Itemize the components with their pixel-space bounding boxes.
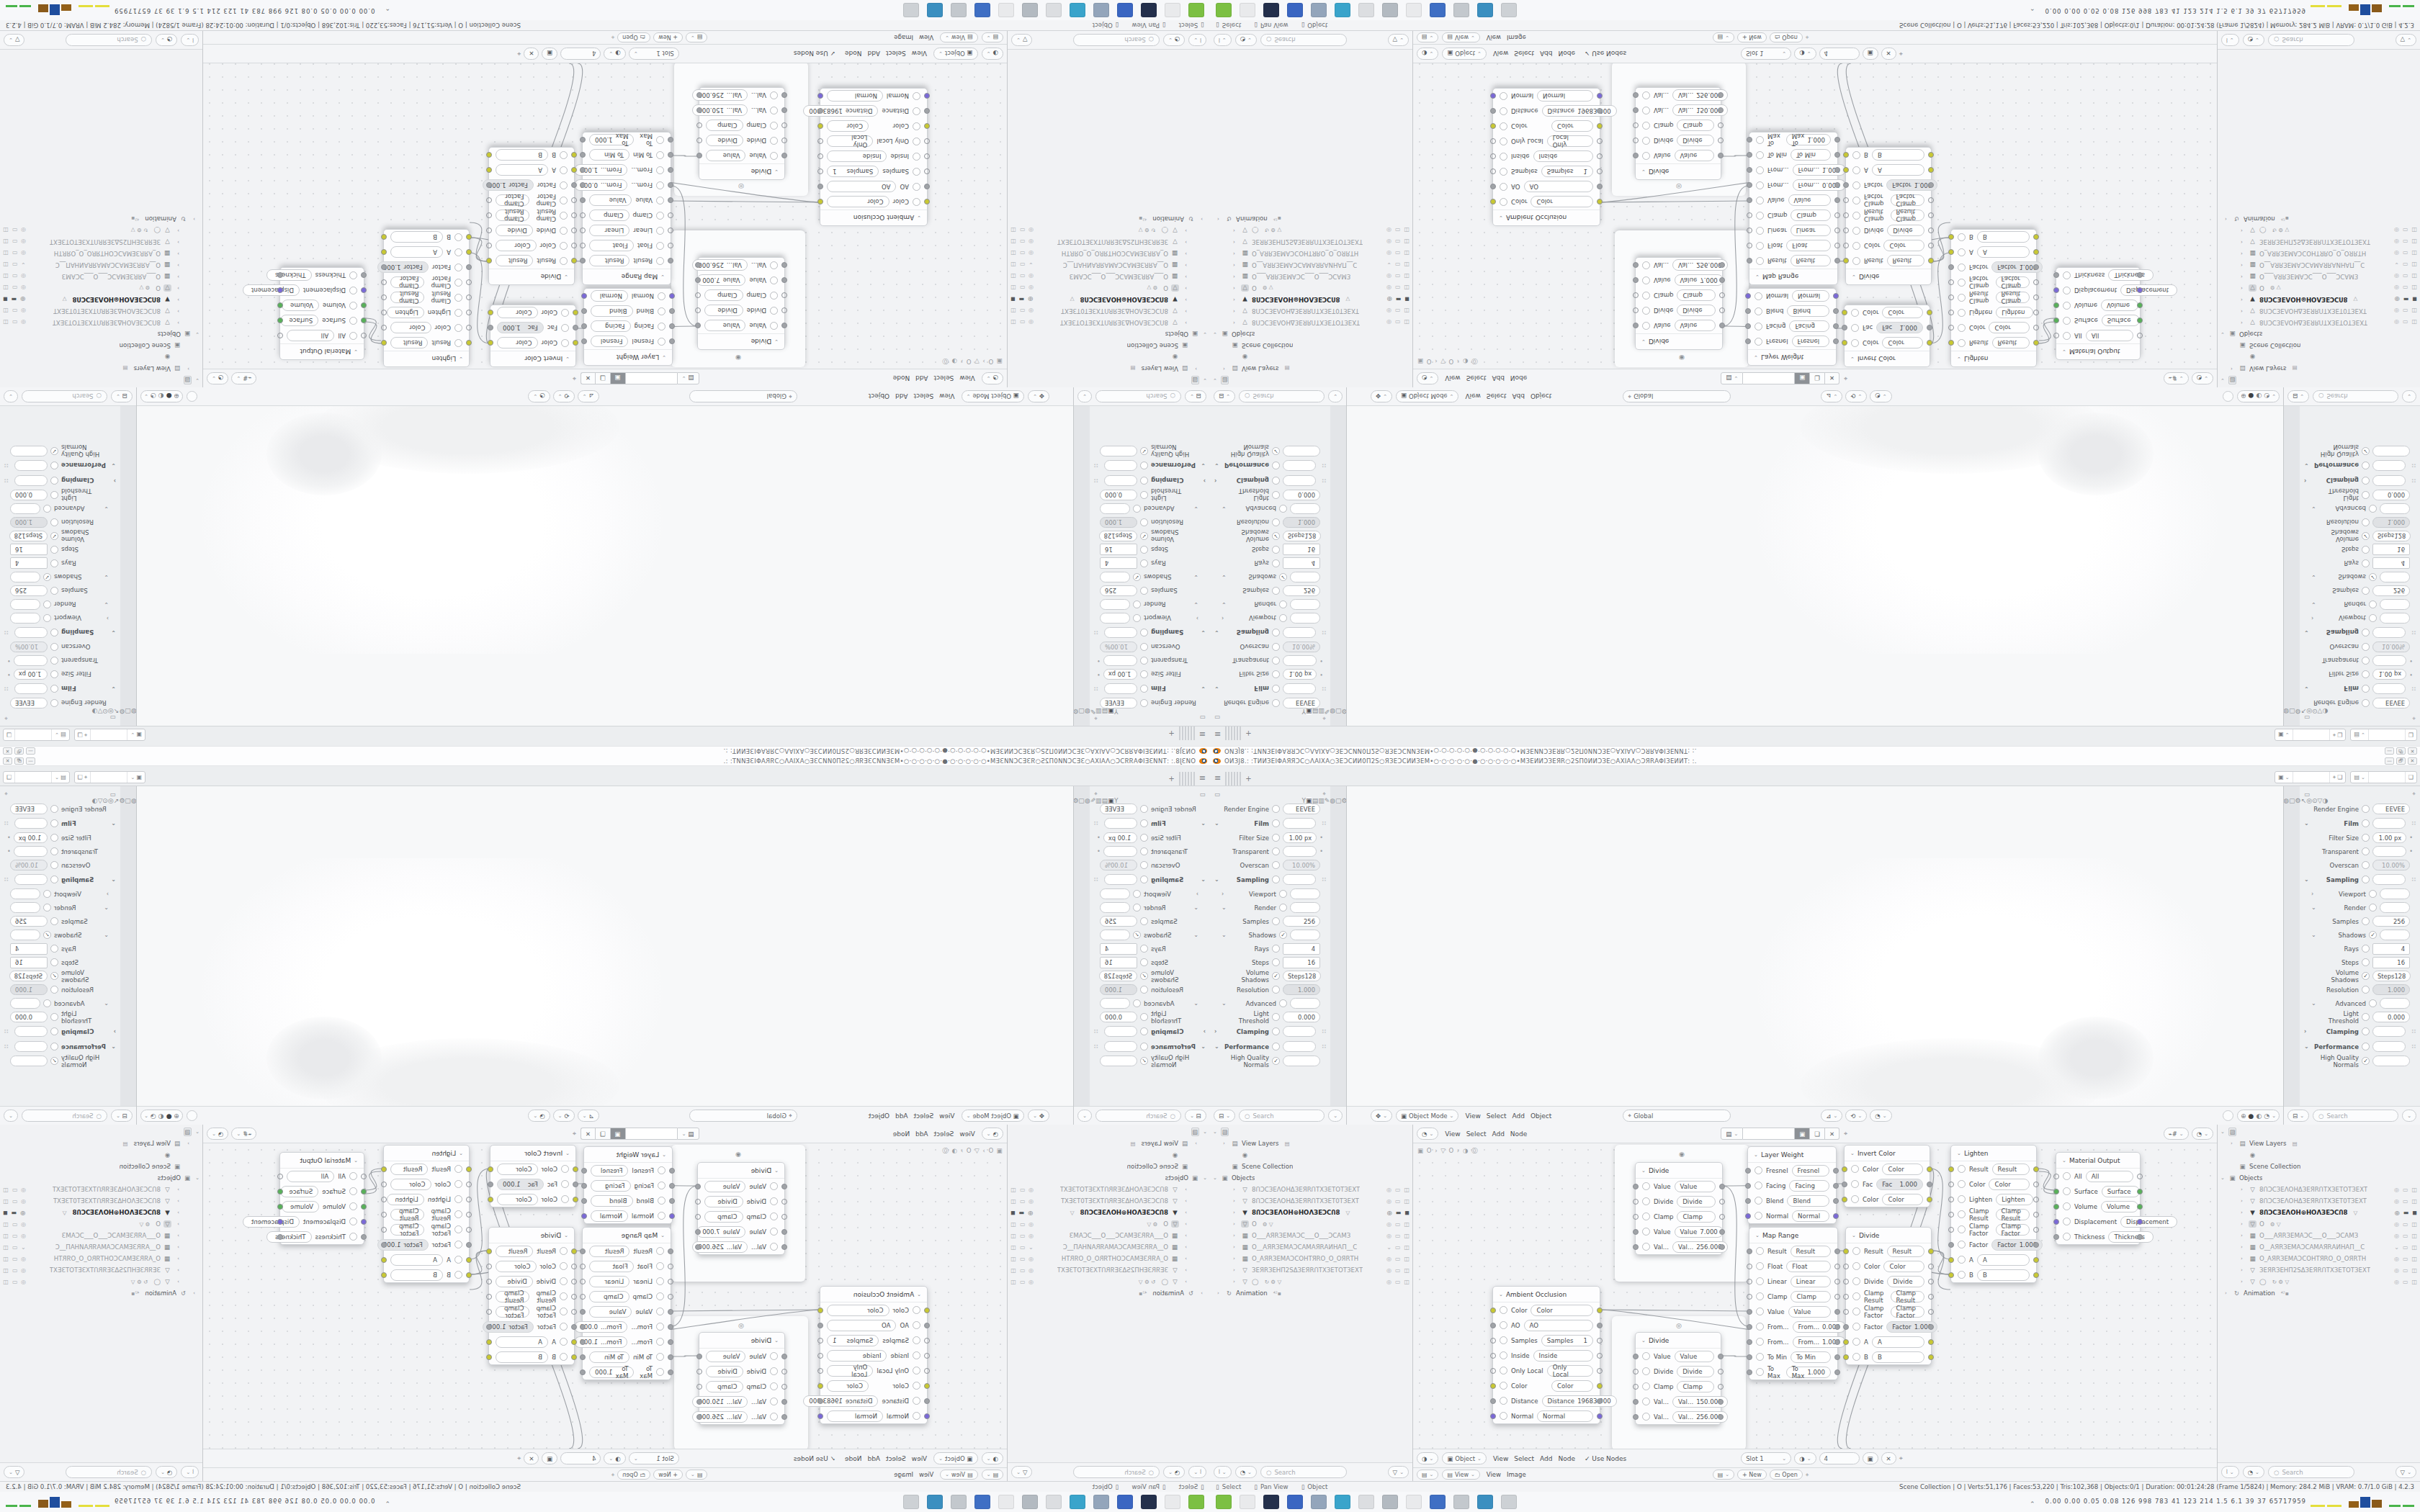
node-checkbox[interactable] <box>770 1182 778 1190</box>
node-row[interactable]: Val... Val...256.000 <box>699 88 784 103</box>
shader-node[interactable]: ⌄Invert Color Color Color <box>1844 1145 1930 1207</box>
node-checkbox[interactable] <box>561 309 569 317</box>
overlays-button[interactable]: ◔⌄ <box>1870 1110 1891 1122</box>
output-socket[interactable] <box>1834 258 1840 264</box>
property-checkbox[interactable] <box>50 917 58 925</box>
node-field[interactable]: Inside <box>1533 151 1593 163</box>
output-socket[interactable] <box>1928 1324 1934 1330</box>
hide-eye-icon[interactable]: ◎ <box>1028 320 1034 326</box>
outliner-row[interactable]: › ▽ ЗЕЯRЗЕНП2SΔЗЕЯRՈТХЗЕТОТЗЕХТ ◎▭◫ <box>2220 1264 2417 1276</box>
expand-chevron[interactable]: › <box>174 308 179 314</box>
outliner-row[interactable]: › ▦ O__АЯRЗЕМАϽϹАМАЯRАИНАП__Ϲ ⌄▭◫ <box>1010 1241 1207 1253</box>
section-chevron[interactable]: › <box>1214 477 1220 484</box>
property-checkbox[interactable] <box>1140 861 1148 869</box>
input-socket[interactable] <box>361 333 367 339</box>
property-value[interactable] <box>1100 503 1130 514</box>
node-checkbox[interactable] <box>454 309 462 317</box>
proportional-edit-button[interactable]: ⟲⌄ <box>1845 390 1867 402</box>
input-socket[interactable] <box>1843 1324 1849 1330</box>
shading-mode-button[interactable]: ◔ <box>2264 1112 2269 1120</box>
node-checkbox[interactable] <box>1958 1210 1966 1218</box>
node-field[interactable]: Clamp <box>704 290 743 302</box>
section-chevron[interactable]: › <box>110 1028 116 1035</box>
properties-row[interactable]: Volume Shadows ✓ Steps128 <box>1214 529 1326 543</box>
viewport-toggle-icon[interactable]: ▭ <box>1020 1267 1026 1274</box>
hide-eye-icon[interactable]: ◎ <box>21 285 26 292</box>
property-value[interactable] <box>2380 930 2410 940</box>
shading-mode-button[interactable]: ⊕ <box>2241 1112 2246 1120</box>
properties-row[interactable]: High Quality Normals ✓ <box>2304 1054 2416 1068</box>
shader-node[interactable]: ⌄Divide Result Result <box>488 147 575 285</box>
object-name[interactable]: 8ՈϽϹЗЕΛОНΔЗЕЯRՈТХЗЕТОТЗЕХТ <box>2259 1186 2367 1193</box>
input-socket[interactable] <box>1948 280 1954 286</box>
menu-item[interactable]: View <box>916 34 936 41</box>
property-checkbox[interactable] <box>50 986 58 994</box>
input-socket[interactable] <box>781 1229 787 1235</box>
node-row[interactable]: Facing Facing <box>584 319 672 334</box>
properties-search[interactable]: ○Search <box>1239 390 1325 402</box>
input-socket[interactable] <box>924 109 930 114</box>
node-checkbox[interactable] <box>1642 1382 1650 1390</box>
node-row[interactable]: Value Value <box>698 318 784 333</box>
node-row[interactable]: Val... Val...150.000 <box>1636 1394 1721 1409</box>
node-checkbox[interactable] <box>770 1398 778 1405</box>
properties-row[interactable]: Overscan 10.00% <box>4 640 116 654</box>
property-value[interactable] <box>1290 572 1320 582</box>
node-checkbox[interactable] <box>1958 248 1966 256</box>
viewport-toggle-icon[interactable]: ▭ <box>1020 1233 1026 1239</box>
property-value[interactable]: 0.000 <box>10 1012 48 1022</box>
output-socket[interactable] <box>1718 153 1724 159</box>
menu-item[interactable]: View <box>936 1112 957 1120</box>
nodetree-browse-button[interactable]: ▤⌄ <box>1721 372 1743 384</box>
render-toggle-icon[interactable]: ◫ <box>3 1221 9 1228</box>
input-socket[interactable] <box>1843 198 1849 204</box>
property-value[interactable]: 1.000 <box>1100 517 1137 528</box>
properties-tab-icon[interactable]: ⚙ <box>1074 797 1078 804</box>
property-value[interactable]: Steps128 <box>9 971 48 981</box>
property-checkbox[interactable] <box>2362 477 2370 485</box>
object-name[interactable]: Animation <box>1152 215 1184 222</box>
property-checkbox[interactable] <box>2362 861 2370 869</box>
shader-node[interactable]: ⌄Invert Color Color Color <box>490 1145 576 1207</box>
section-chevron[interactable]: ⌄ <box>1193 1000 1198 1007</box>
input-socket[interactable] <box>668 1248 673 1254</box>
input-socket[interactable] <box>924 1398 930 1404</box>
hide-eye-icon[interactable]: ◎ <box>21 1233 26 1239</box>
node-row[interactable]: Divide Divide <box>489 1274 574 1289</box>
expand-chevron[interactable]: › <box>1217 1290 1222 1296</box>
input-socket[interactable] <box>781 93 787 99</box>
node-field[interactable]: B <box>1977 1269 2030 1281</box>
node-checkbox[interactable] <box>560 1338 568 1346</box>
input-socket[interactable] <box>1842 1166 1847 1172</box>
viewport-toggle-icon[interactable]: ▭ <box>1020 1187 1026 1193</box>
node-checkbox[interactable] <box>1852 1247 1860 1255</box>
output-socket[interactable] <box>2137 318 2143 324</box>
output-socket[interactable] <box>696 153 702 159</box>
filter-button[interactable]: ▽⌄ <box>1011 34 1032 46</box>
properties-row[interactable]: Steps 16 <box>4 543 116 557</box>
properties-row[interactable]: ⌄ Advanced <box>1094 502 1206 516</box>
node-row[interactable]: To Max To Max1.000 <box>1749 132 1837 148</box>
section-chevron[interactable]: ⌄ <box>2304 629 2310 636</box>
input-socket[interactable] <box>1490 184 1496 190</box>
hide-eye-icon[interactable]: ◎ <box>21 1267 26 1274</box>
node-field[interactable]: Color <box>497 1194 538 1205</box>
object-name[interactable]: 8ՈϽϹЗЕΛОНΔЗЕЯRՈТХЗЕТОТЗЕХТ <box>53 319 161 326</box>
shader-node[interactable]: ⌄Invert Color Color Color <box>1844 305 1930 367</box>
properties-search[interactable]: ○Search <box>22 1110 107 1122</box>
property-checkbox[interactable] <box>1272 1013 1280 1021</box>
menu-item[interactable]: Image <box>1504 1471 1529 1478</box>
node-row[interactable]: Divide Divide <box>699 133 784 148</box>
property-value[interactable] <box>1100 902 1130 913</box>
outliner-row[interactable]: › ▦ O__АЯRЗЕМАϽϹАМАЯRАИНАП__Ϲ ⌄▭◫ <box>3 259 200 271</box>
node-checkbox[interactable] <box>656 1353 664 1361</box>
output-socket[interactable] <box>1719 1214 1725 1220</box>
input-socket[interactable] <box>781 1184 787 1189</box>
property-value[interactable]: Steps128 <box>1283 531 1321 541</box>
expand-chevron[interactable]: › <box>2241 1198 2246 1204</box>
node-checkbox[interactable] <box>561 324 569 332</box>
render-toggle-icon[interactable]: ◼ <box>3 1210 8 1216</box>
input-socket[interactable] <box>668 1264 673 1269</box>
node-row[interactable]: From... From...0.000 <box>583 178 671 193</box>
node-field[interactable]: Value <box>706 1351 745 1362</box>
section-chevron[interactable]: ⌄ <box>103 601 109 608</box>
input-socket[interactable] <box>573 1182 578 1187</box>
property-checkbox[interactable]: ✓ <box>2362 447 2370 455</box>
editor-type-button[interactable]: ✥⌄ <box>1028 390 1049 402</box>
input-socket[interactable] <box>668 198 673 204</box>
input-socket[interactable] <box>1747 1248 1752 1254</box>
expand-chevron[interactable]: ⌄ <box>1202 377 1207 383</box>
property-checkbox[interactable] <box>50 518 58 526</box>
animate-dot[interactable]: • <box>7 657 11 664</box>
property-checkbox[interactable] <box>1272 819 1280 827</box>
expand-chevron[interactable]: › <box>1182 1198 1187 1204</box>
outliner-row[interactable]: › ▦ O_АЯRЗЕМАϽϹОНТЯRО_О_ОЯRТН ◎▭◫ <box>2220 1253 2417 1264</box>
output-socket[interactable] <box>381 325 387 331</box>
node-row[interactable]: A A <box>1846 1334 1931 1349</box>
outliner-row[interactable]: › ▽ O ⚙ ▽ ◎▭◫ <box>1010 282 1207 294</box>
input-socket[interactable] <box>571 1309 577 1315</box>
object-name[interactable]: Scene Collection <box>2249 1163 2300 1170</box>
node-checkbox[interactable] <box>1958 264 1966 271</box>
node-checkbox[interactable] <box>1756 166 1764 174</box>
input-socket[interactable] <box>571 1248 577 1254</box>
menu-item[interactable]: View <box>956 375 977 382</box>
input-socket[interactable] <box>1633 1354 1639 1359</box>
expand-chevron[interactable]: › <box>2241 308 2246 314</box>
output-socket[interactable] <box>580 1354 586 1360</box>
object-name[interactable]: O_АЯRЗЕМАϽϹОНТЯRО_О_ОЯRТН <box>1252 1255 1358 1262</box>
menu-item[interactable]: View <box>1484 34 1504 41</box>
input-socket[interactable] <box>669 1213 675 1219</box>
properties-row[interactable]: ⌄ Advanced <box>4 502 116 516</box>
object-name[interactable]: 8ՈϽϹЗЕΛОНΔЗЕЯRՈТХЗЕТ0ТЗЕХТ <box>2259 307 2367 315</box>
input-socket[interactable] <box>1747 153 1752 158</box>
properties-row[interactable]: › Clamping ∷ <box>4 473 116 488</box>
menu-hamburger-icon[interactable]: ≡ <box>1214 773 1221 783</box>
node-row[interactable]: Value Value7.000 <box>698 273 784 288</box>
hide-eye-icon[interactable]: ◎ <box>1028 1187 1034 1193</box>
output-socket[interactable] <box>381 250 387 256</box>
object-name[interactable]: Animation <box>2244 215 2275 222</box>
node-row[interactable]: Surface Surface <box>2056 313 2140 328</box>
outliner-row[interactable]: ▣ Scene Collection <box>3 340 200 351</box>
input-socket[interactable] <box>361 1234 367 1240</box>
input-socket[interactable] <box>1843 153 1849 158</box>
node-row[interactable]: To Min To Min <box>583 1349 671 1364</box>
properties-row[interactable]: High Quality Normals ✓ <box>2304 444 2416 458</box>
outliner-row[interactable]: ▣ Scene Collection <box>3 1161 200 1172</box>
node-field[interactable]: Displacement <box>243 285 300 297</box>
properties-row[interactable]: Steps 16 <box>1214 955 1326 969</box>
property-value[interactable]: EEVEE <box>2372 804 2410 814</box>
node-checkbox[interactable] <box>1754 323 1762 330</box>
expand-chevron[interactable]: › <box>2241 297 2246 302</box>
expand-chevron[interactable]: › <box>190 1290 195 1296</box>
hide-eye-icon[interactable]: ◎ <box>21 308 26 315</box>
viewport-toggle-icon[interactable]: ▭ <box>12 274 18 280</box>
overlays-button[interactable]: ◔⌄ <box>528 390 550 402</box>
nodetree-browse-button[interactable]: ▤⌄ <box>677 1128 699 1140</box>
output-socket[interactable] <box>817 1353 823 1359</box>
shading-mode-button[interactable]: ◔ <box>2264 393 2269 400</box>
output-socket[interactable] <box>580 183 586 189</box>
node-checkbox[interactable] <box>1756 1338 1764 1346</box>
node-row[interactable]: Val... Val...256.000 <box>1636 1239 1722 1254</box>
section-chevron[interactable]: › <box>2311 891 2317 897</box>
node-checkbox[interactable] <box>560 1262 568 1270</box>
properties-row[interactable]: ⌄ Performance ∷ <box>2304 1039 2416 1054</box>
object-name[interactable]: 8ՈϽϹЗЕΛОН⊕НОΛЗЕϽϹՈ8 <box>72 296 161 303</box>
image-browse-button[interactable]: ▤⌄ <box>1713 1470 1734 1480</box>
properties-row[interactable]: Volume Shadows ✓ Steps128 <box>1094 969 1206 983</box>
properties-row[interactable]: Samples 256 <box>1214 584 1326 598</box>
property-value[interactable] <box>2372 1056 2410 1066</box>
object-name[interactable]: O___АЯRЗЕМАϽϹ___О___ϽϹАМЗ <box>1070 1232 1168 1239</box>
render-toggle-icon[interactable]: ◫ <box>2411 1233 2417 1239</box>
taskbar-app-icon[interactable] <box>1406 3 1422 17</box>
workspace-tab[interactable] <box>1182 772 1183 786</box>
node-checkbox[interactable] <box>1852 166 1860 174</box>
input-socket[interactable] <box>1843 213 1849 219</box>
property-checkbox[interactable] <box>50 699 58 707</box>
node-row[interactable]: From... From...1.000 <box>1749 163 1837 178</box>
shader-node[interactable]: ⌄Ambient Occlusion Color Color <box>820 88 928 226</box>
node-checkbox[interactable] <box>1756 212 1764 220</box>
expand-chevron[interactable]: › <box>1192 366 1197 372</box>
output-socket[interactable] <box>486 153 492 158</box>
properties-search[interactable]: ○Search <box>22 390 107 402</box>
property-checkbox[interactable] <box>1140 958 1148 966</box>
filter-button[interactable]: ▽⌄ <box>4 34 24 46</box>
viewport-toggle-icon[interactable]: ▭ <box>1395 285 1401 292</box>
node-title[interactable]: ⌄Lighten <box>1951 351 2036 366</box>
property-value[interactable]: 10.00% <box>1100 642 1137 652</box>
output-socket[interactable] <box>581 1213 587 1219</box>
outliner-row[interactable]: › ▽ ЗЕЯRЗЕНП2SΔЗЕЯRՈТХЗЕТОТЗЕХТ ◎▭◫ <box>1010 1264 1207 1276</box>
taskbar-app-icon[interactable] <box>1287 3 1303 17</box>
output-socket[interactable] <box>277 1174 283 1179</box>
input-socket[interactable] <box>1633 1184 1639 1189</box>
filter-button[interactable]: ▽⌄ <box>2396 1466 2416 1478</box>
outliner-row[interactable]: › ▽ 8ՈϽϹЗЕΛОНΔЗЕЯRՈТХЗЕТ0ТЗЕХТ ◎▭◫ <box>1010 1195 1207 1207</box>
output-socket[interactable] <box>381 1212 387 1218</box>
outliner-row[interactable]: › ▽ 8ՈϽϹЗЕΛОНΔЗЕЯRՈТХЗЕТ0ТЗЕХТ ◎▭◫ <box>1213 305 1410 317</box>
node-checkbox[interactable] <box>1642 1413 1650 1421</box>
properties-row[interactable]: ⌄ Performance ∷ <box>1094 458 1206 473</box>
output-socket[interactable] <box>580 213 586 219</box>
output-socket[interactable] <box>488 310 493 316</box>
expand-chevron[interactable]: › <box>190 216 195 222</box>
node-row[interactable]: Value Value7.000 <box>1636 1224 1722 1239</box>
node-row[interactable]: Color Color <box>1845 1161 1930 1176</box>
properties-tab-icon[interactable]: ▤ <box>1102 797 1108 804</box>
property-value[interactable] <box>2372 475 2406 486</box>
expand-chevron[interactable]: › <box>1233 320 1238 325</box>
hide-eye-icon[interactable]: ◎ <box>1386 251 1391 257</box>
viewport-toggle-icon[interactable]: ▭ <box>12 1233 18 1239</box>
shader-node[interactable]: ⌄Divide Value Value <box>1635 1162 1723 1255</box>
node-checkbox[interactable] <box>1642 137 1650 145</box>
copy-datablock-button[interactable]: ❏ <box>1810 372 1825 384</box>
input-socket[interactable] <box>1948 1197 1954 1202</box>
node-row[interactable]: Val... Val...256.000 <box>698 1239 784 1254</box>
input-socket[interactable] <box>1633 93 1639 99</box>
animate-dot[interactable]: • <box>7 671 11 678</box>
properties-row[interactable]: Light Threshold 0.000 <box>4 488 116 502</box>
node-checkbox[interactable] <box>1754 338 1762 346</box>
node-field[interactable]: Color <box>827 197 889 208</box>
hide-eye-icon[interactable]: ◎ <box>1028 274 1034 280</box>
gizmo-toggle-button[interactable]: ⌁#⌄ <box>231 372 256 384</box>
property-value[interactable]: Steps128 <box>2372 971 2411 981</box>
expand-chevron[interactable]: › <box>1182 239 1187 245</box>
minimize-button[interactable]: — <box>26 748 35 755</box>
hide-eye-icon[interactable]: ◎ <box>1387 1210 1392 1216</box>
properties-row[interactable]: ⌄ Sampling ∷ <box>4 872 116 887</box>
outliner-row[interactable]: › ▦ O_АЯRЗЕМАϽϹОНТЯRО_О_ОЯRТН ◎▭◫ <box>3 248 200 259</box>
node-checkbox[interactable] <box>913 1367 920 1374</box>
render-toggle-icon[interactable]: ◼ <box>2412 1210 2417 1216</box>
object-name[interactable]: 8ՈϽϹЗЕΛОН⊕НОΛЗЕϽϹՈ8 <box>2259 1209 2348 1216</box>
properties-row[interactable]: Samples 256 <box>4 914 116 928</box>
output-socket[interactable] <box>1597 1398 1603 1404</box>
node-title[interactable]: ⌄Divide <box>698 333 784 349</box>
output-socket[interactable] <box>1719 1199 1725 1205</box>
object-name[interactable]: O__АЯRЗЕМАϽϹАМАЯRАИНАП__Ϲ <box>1252 1243 1357 1251</box>
node-row[interactable]: From... From...0.000 <box>1749 1319 1837 1334</box>
property-value[interactable] <box>2372 874 2406 885</box>
node-row[interactable]: AO AO <box>820 1318 927 1333</box>
property-checkbox[interactable] <box>2362 876 2370 883</box>
node-row[interactable]: Result Result <box>384 336 469 351</box>
output-socket[interactable] <box>1833 1183 1839 1189</box>
outliner-row[interactable]: ⌄ ▨ <box>1010 374 1207 386</box>
properties-row[interactable]: ⌄ Render <box>1214 598 1326 611</box>
properties-row[interactable]: ⌄ Sampling ∷ <box>1214 625 1326 640</box>
node-row[interactable]: Clamp Factor Clamp Factor <box>1846 1304 1931 1319</box>
viewport-toggle-icon[interactable]: ▬ <box>12 297 17 303</box>
viewport-toggle-icon[interactable]: ▭ <box>1395 1267 1401 1274</box>
properties-row[interactable]: ⌄ Advanced <box>1094 996 1206 1010</box>
workspace-tab[interactable] <box>1179 726 1180 740</box>
shader-node[interactable]: ⌄Map Range Result Result <box>582 1227 671 1380</box>
properties-row[interactable]: ⌄ Shadows ✓ <box>1214 928 1326 942</box>
input-socket[interactable] <box>1747 243 1752 249</box>
object-name[interactable]: View Layers <box>2249 1140 2287 1147</box>
property-value[interactable] <box>2372 846 2406 857</box>
property-value[interactable] <box>1104 1026 1137 1037</box>
output-socket[interactable] <box>1833 1198 1839 1204</box>
menu-item[interactable]: Object <box>1528 393 1554 400</box>
node-field[interactable]: Blend <box>1787 1195 1829 1207</box>
node-field[interactable]: Distance19683.000 <box>803 106 878 117</box>
pin-icon[interactable]: ⌖ <box>1899 50 1903 58</box>
properties-row[interactable]: ⌄ Render <box>1214 901 1326 914</box>
node-checkbox[interactable] <box>656 212 664 220</box>
shading-mode-button[interactable]: ● <box>2249 1112 2254 1120</box>
node-row[interactable]: Linear Linear <box>583 223 671 238</box>
node-field[interactable]: Value7.000 <box>696 1226 745 1238</box>
outliner-row[interactable]: ⌄ ▣ Objects <box>3 328 200 340</box>
taskbar-app-icon[interactable] <box>927 3 943 17</box>
copy-datablock-button[interactable]: ❏ <box>1810 1128 1825 1140</box>
outliner-row[interactable]: ◉ <box>2220 1149 2417 1161</box>
object-name[interactable]: ◯ <box>2259 1278 2267 1285</box>
property-value[interactable]: 256 <box>1100 585 1137 596</box>
output-socket[interactable] <box>696 138 702 144</box>
menu-item[interactable]: View <box>909 50 930 58</box>
properties-tab-icon[interactable]: ⚙ <box>1342 708 1346 715</box>
node-field[interactable]: To Min <box>589 150 629 161</box>
section-chevron[interactable]: ⌄ <box>2311 574 2317 580</box>
expand-chevron[interactable]: › <box>174 320 179 325</box>
property-checkbox[interactable] <box>2362 917 2370 925</box>
output-socket[interactable] <box>695 1199 701 1205</box>
shading-mode-button[interactable]: ⊕ <box>174 1112 179 1120</box>
input-socket[interactable] <box>924 154 930 160</box>
snap-button[interactable]: ⊿⌄ <box>1821 390 1842 402</box>
object-name[interactable]: Scene Collection <box>120 1163 171 1170</box>
node-checkbox[interactable] <box>1642 276 1650 284</box>
filter-mode-button[interactable]: ◔⌄ <box>2243 34 2264 46</box>
output-socket[interactable] <box>381 1166 387 1172</box>
animate-dot[interactable]: • <box>7 848 11 855</box>
shader-node[interactable]: ⌄Divide Value Value <box>1635 1332 1721 1425</box>
node-field[interactable]: Only Local <box>827 136 873 148</box>
shading-mode-button[interactable]: ◔ <box>151 393 156 400</box>
tab-switch-button[interactable]: ⊟⌄ <box>2287 390 2309 402</box>
property-value[interactable] <box>2380 503 2410 514</box>
node-title[interactable]: ⌄Map Range <box>1749 269 1837 284</box>
node-row[interactable]: Value Value <box>698 1179 784 1194</box>
object-name[interactable]: Objects <box>158 1174 181 1182</box>
node-row[interactable]: Clamp Result Clamp Result <box>1951 290 2036 305</box>
viewport-toggle-icon[interactable]: ▭ <box>12 262 18 269</box>
properties-row[interactable]: ⌄ Film ∷ <box>1214 681 1326 696</box>
property-value[interactable]: Steps128 <box>1283 971 1321 981</box>
property-value[interactable] <box>1283 627 1316 638</box>
node-checkbox[interactable] <box>1642 1182 1650 1190</box>
shader-node[interactable]: ⌄Divide Value Value <box>697 1162 785 1255</box>
viewport-toggle-icon[interactable]: ▭ <box>1395 1244 1401 1251</box>
node-checkbox[interactable] <box>349 271 357 279</box>
